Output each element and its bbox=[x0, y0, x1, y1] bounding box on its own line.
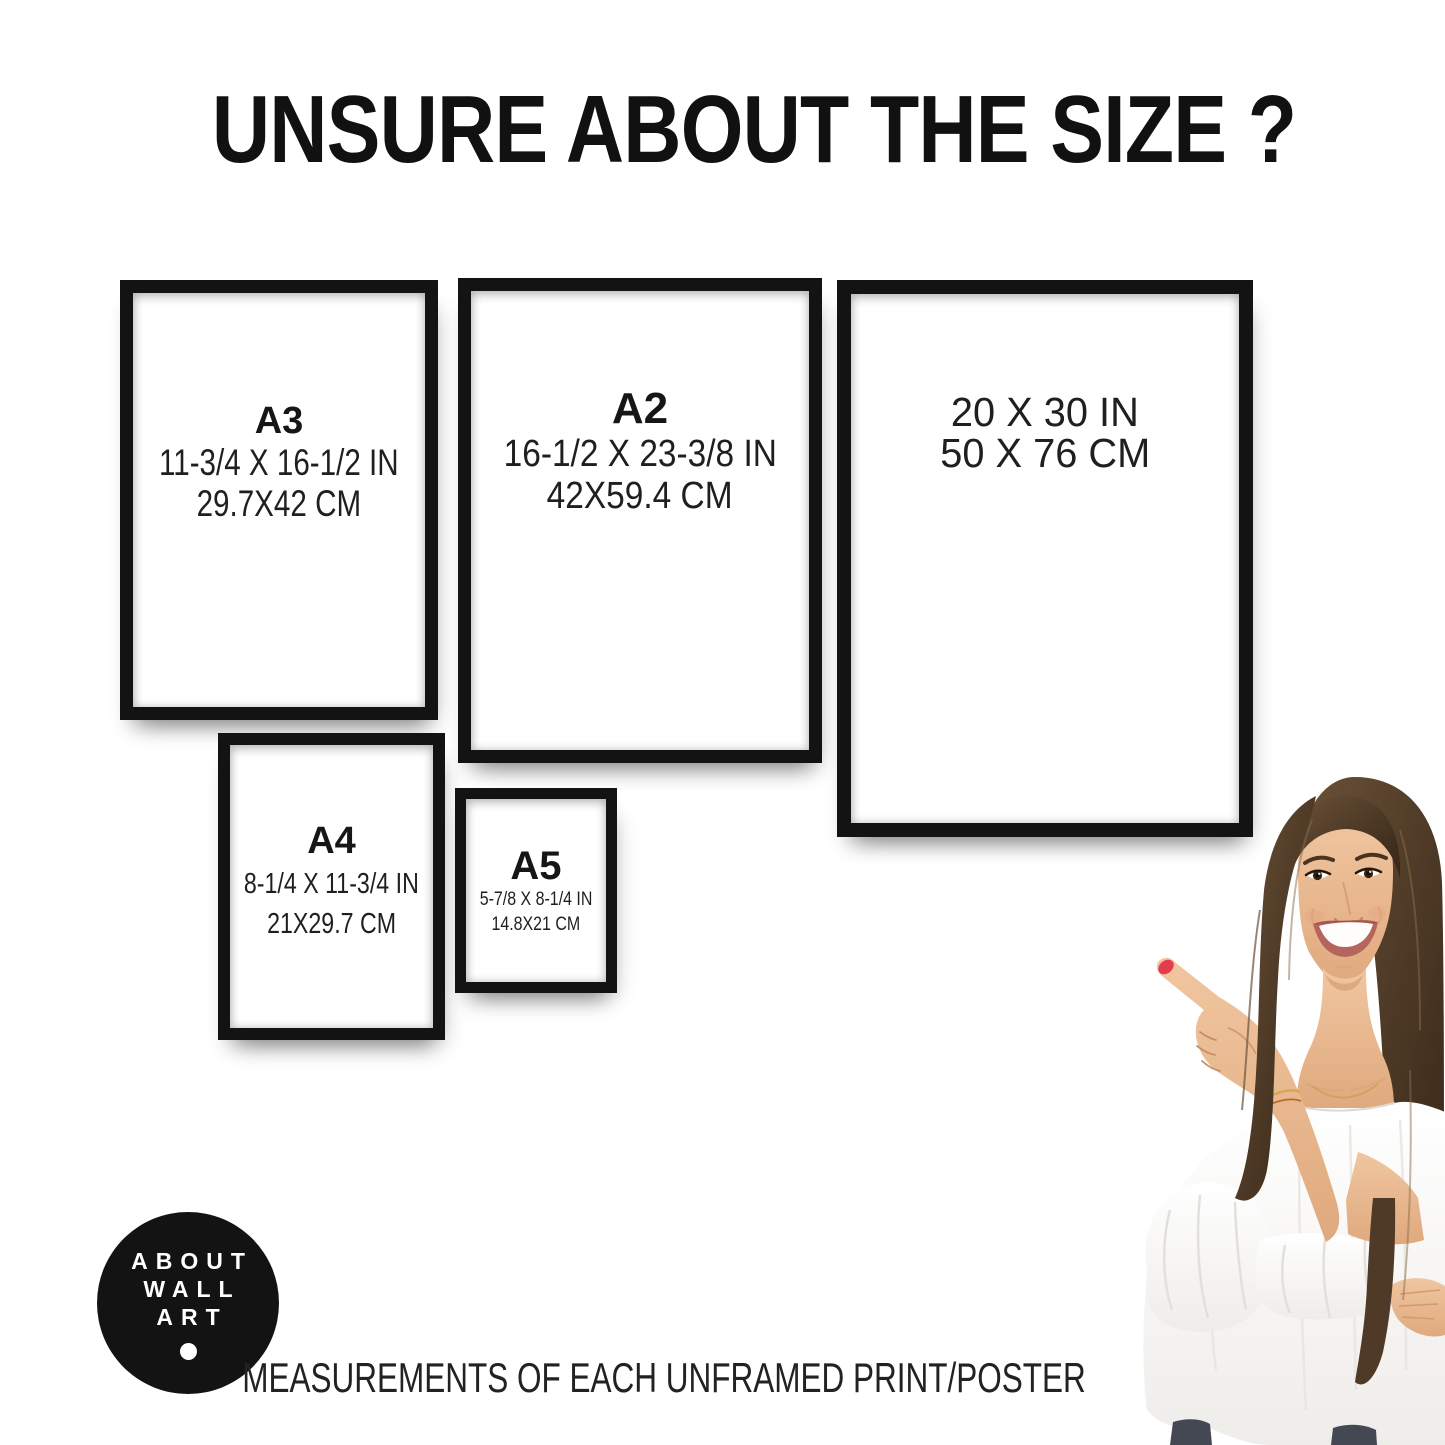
frame-20x30-inches: 20 X 30 IN bbox=[951, 392, 1139, 433]
frame-a3: A3 11-3/4 X 16-1/2 IN 29.7X42 CM bbox=[120, 280, 438, 720]
frame-a2: A2 16-1/2 X 23-3/8 IN 42X59.4 CM bbox=[458, 278, 822, 763]
frame-a4-text: A4 8-1/4 X 11-3/4 IN 21X29.7 CM bbox=[222, 818, 441, 944]
woman-pointing-illustration bbox=[1100, 770, 1445, 1445]
frame-20x30: 20 X 30 IN 50 X 76 CM bbox=[837, 280, 1253, 837]
frame-20x30-mat: 20 X 30 IN 50 X 76 CM bbox=[851, 294, 1239, 823]
frame-a3-text: A3 11-3/4 X 16-1/2 IN 29.7X42 CM bbox=[129, 400, 429, 524]
frame-a4-cm: 21X29.7 CM bbox=[267, 904, 396, 944]
logo-line-wall: WALL bbox=[143, 1275, 240, 1303]
frame-a4: A4 8-1/4 X 11-3/4 IN 21X29.7 CM bbox=[218, 733, 445, 1040]
frame-a3-cm: 29.7X42 CM bbox=[197, 483, 362, 524]
frame-a3-label: A3 bbox=[255, 400, 304, 442]
frame-a5-label: A5 bbox=[510, 845, 561, 887]
frame-a5-mat: A5 5-7/8 X 8-1/4 IN 14.8X21 CM bbox=[466, 799, 606, 982]
page-title: UNSURE ABOUT THE SIZE ? bbox=[212, 82, 1296, 178]
frame-a3-inches: 11-3/4 X 16-1/2 IN bbox=[159, 442, 399, 483]
frame-a2-mat: A2 16-1/2 X 23-3/8 IN 42X59.4 CM bbox=[471, 291, 809, 750]
frame-a2-label: A2 bbox=[612, 385, 668, 433]
frame-a4-mat: A4 8-1/4 X 11-3/4 IN 21X29.7 CM bbox=[230, 745, 433, 1028]
frame-a4-inches: 8-1/4 X 11-3/4 IN bbox=[244, 864, 419, 904]
frame-a2-cm: 42X59.4 CM bbox=[547, 475, 733, 517]
size-guide-image: UNSURE ABOUT THE SIZE ? A3 11-3/4 X 16-1… bbox=[0, 0, 1445, 1445]
frame-a5-inches: 5-7/8 X 8-1/4 IN bbox=[480, 887, 593, 912]
frame-a3-mat: A3 11-3/4 X 16-1/2 IN 29.7X42 CM bbox=[133, 293, 425, 707]
frame-a2-text: A2 16-1/2 X 23-3/8 IN 42X59.4 CM bbox=[485, 385, 796, 517]
frame-a5-cm: 14.8X21 CM bbox=[492, 912, 581, 937]
frame-a5: A5 5-7/8 X 8-1/4 IN 14.8X21 CM bbox=[455, 788, 617, 993]
footer-caption: MEASUREMENTS OF EACH UNFRAMED PRINT/POST… bbox=[242, 1357, 1086, 1399]
logo-line-about: ABOUT bbox=[131, 1247, 253, 1275]
logo-line-art: ART bbox=[156, 1303, 227, 1331]
frame-a5-text: A5 5-7/8 X 8-1/4 IN 14.8X21 CM bbox=[469, 845, 603, 937]
frame-20x30-cm: 50 X 76 CM bbox=[940, 433, 1150, 474]
logo-dot bbox=[180, 1343, 197, 1360]
frame-a2-inches: 16-1/2 X 23-3/8 IN bbox=[503, 433, 776, 475]
frame-20x30-text: 20 X 30 IN 50 X 76 CM bbox=[937, 392, 1154, 474]
frame-a4-label: A4 bbox=[307, 818, 356, 864]
